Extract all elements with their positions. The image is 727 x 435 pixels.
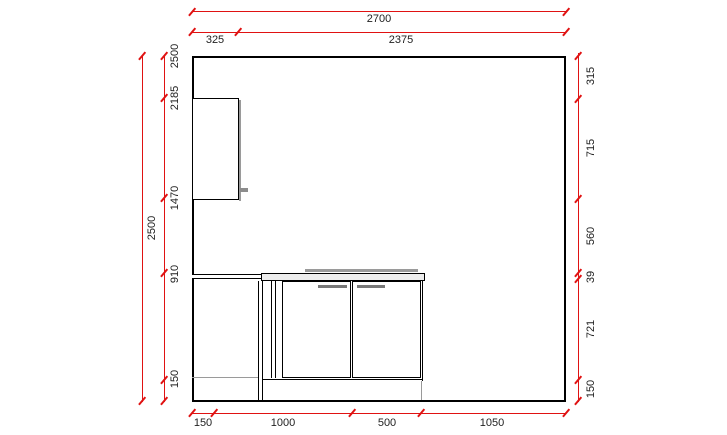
dim-line-left-marks <box>164 55 165 402</box>
kitchen-elevation-drawing: 2700 325 2375 2500 2500 2185 1470 910 15… <box>0 0 727 435</box>
dim-label-left-2500: 2500 <box>169 44 181 68</box>
dim-tick <box>138 396 146 405</box>
dim-label-left-150: 150 <box>169 370 181 388</box>
countertop-left-profile <box>192 274 262 279</box>
base-cabinet-side-line <box>262 281 263 400</box>
dim-label-left-overall: 2500 <box>146 216 158 240</box>
base-cabinet-panel-line <box>275 281 276 378</box>
dim-line-top-segments <box>192 32 566 33</box>
dim-label-bottom-150: 150 <box>194 417 212 429</box>
dim-label-bottom-500: 500 <box>378 417 396 429</box>
dim-label-left-2185: 2185 <box>169 86 181 110</box>
base-cabinet-right-edge <box>422 281 423 381</box>
dim-label-top-seg-325: 325 <box>206 34 224 46</box>
dim-label-right-560: 560 <box>585 227 597 245</box>
base-cabinet-panel-line <box>271 281 272 378</box>
dim-label-right-721: 721 <box>585 320 597 338</box>
dim-label-bottom-1000: 1000 <box>271 417 295 429</box>
plinth-right-edge <box>421 381 422 401</box>
plinth-line-left <box>192 377 258 378</box>
countertop-back-edge <box>305 269 418 272</box>
dim-tick <box>562 408 570 417</box>
dim-line-top-total <box>192 11 566 12</box>
base-cabinet-door-left[interactable] <box>282 281 351 378</box>
dim-line-right-segments <box>578 53 579 402</box>
wall-cabinet-handle <box>240 188 248 192</box>
countertop[interactable] <box>261 273 425 281</box>
dim-label-left-1470: 1470 <box>169 186 181 210</box>
dim-tick <box>574 396 582 405</box>
dim-label-top-seg-2375: 2375 <box>389 34 413 46</box>
dim-line-left-overall <box>142 55 143 402</box>
dim-label-top-total: 2700 <box>367 13 391 25</box>
dim-label-bottom-1050: 1050 <box>480 417 504 429</box>
base-cabinet-bottom-line <box>262 379 423 380</box>
dim-label-right-39: 39 <box>585 271 597 283</box>
door-handle-right <box>357 285 385 288</box>
dim-label-right-150: 150 <box>585 380 597 398</box>
dim-tick <box>562 27 570 36</box>
wall-cabinet[interactable] <box>192 98 239 200</box>
dim-line-bottom-segments <box>192 413 566 414</box>
dim-label-right-715: 715 <box>585 139 597 157</box>
door-handle-left <box>318 285 347 288</box>
base-cabinet-side-line <box>258 281 259 400</box>
dim-label-left-910: 910 <box>169 265 181 283</box>
base-cabinet-door-right[interactable] <box>352 281 421 378</box>
dim-label-right-315: 315 <box>585 67 597 85</box>
